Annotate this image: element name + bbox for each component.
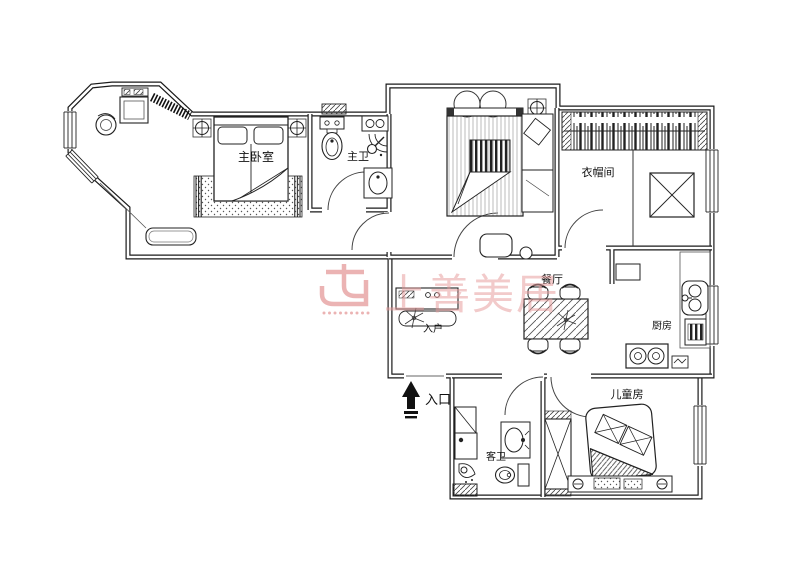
bath-counter-icon — [455, 433, 477, 459]
bench-icon — [146, 228, 196, 245]
label-entrance: 入口 — [425, 393, 451, 408]
label-entry-hall: 入户 — [423, 322, 443, 335]
floorplan-canvas: 主卧室 主卫 — [0, 0, 800, 578]
wardrobe-rail-icon — [562, 112, 707, 150]
desk-icon — [120, 88, 148, 123]
single-bed-icon — [447, 108, 523, 216]
label-kids-room: 儿童房 — [611, 387, 644, 401]
watermark-logo-icon — [322, 264, 370, 315]
flue-box — [322, 104, 346, 114]
label-master-bedroom: 主卧室 — [238, 149, 274, 164]
kitchen-cabinet-icon — [616, 264, 640, 280]
sink-icon — [364, 168, 392, 198]
window-kids-east — [694, 405, 708, 466]
floorplan-svg: 主卧室 主卫 — [0, 0, 800, 578]
appliance-icon — [685, 319, 706, 345]
window-closet-east — [705, 149, 720, 213]
island-box-icon — [650, 173, 694, 217]
chair-icon — [528, 339, 548, 354]
chair-icon — [560, 285, 580, 300]
washer-icon — [453, 484, 477, 496]
window-bay-left — [64, 111, 77, 149]
label-kitchen: 厨房 — [652, 319, 672, 332]
label-master-bath: 主卫 — [347, 150, 369, 163]
toilet-icon — [320, 117, 344, 160]
label-closet: 衣帽间 — [582, 165, 615, 179]
watermark-text: 上善美居 — [384, 270, 560, 319]
watermark: 上善美居 — [322, 264, 560, 319]
label-guest-bath: 客卫 — [486, 450, 506, 463]
entrance-arrow-icon — [402, 381, 420, 397]
wardrobe-icon — [545, 411, 571, 496]
bath-cabinet-icon — [455, 407, 476, 433]
chair-icon — [560, 339, 580, 354]
vanity-cabinet-icon — [362, 116, 388, 131]
kids-bed-icon — [585, 403, 657, 480]
entrance-marker: 入口 — [402, 381, 451, 418]
kids-bench-icon — [568, 476, 672, 492]
chaise-icon — [522, 114, 553, 212]
